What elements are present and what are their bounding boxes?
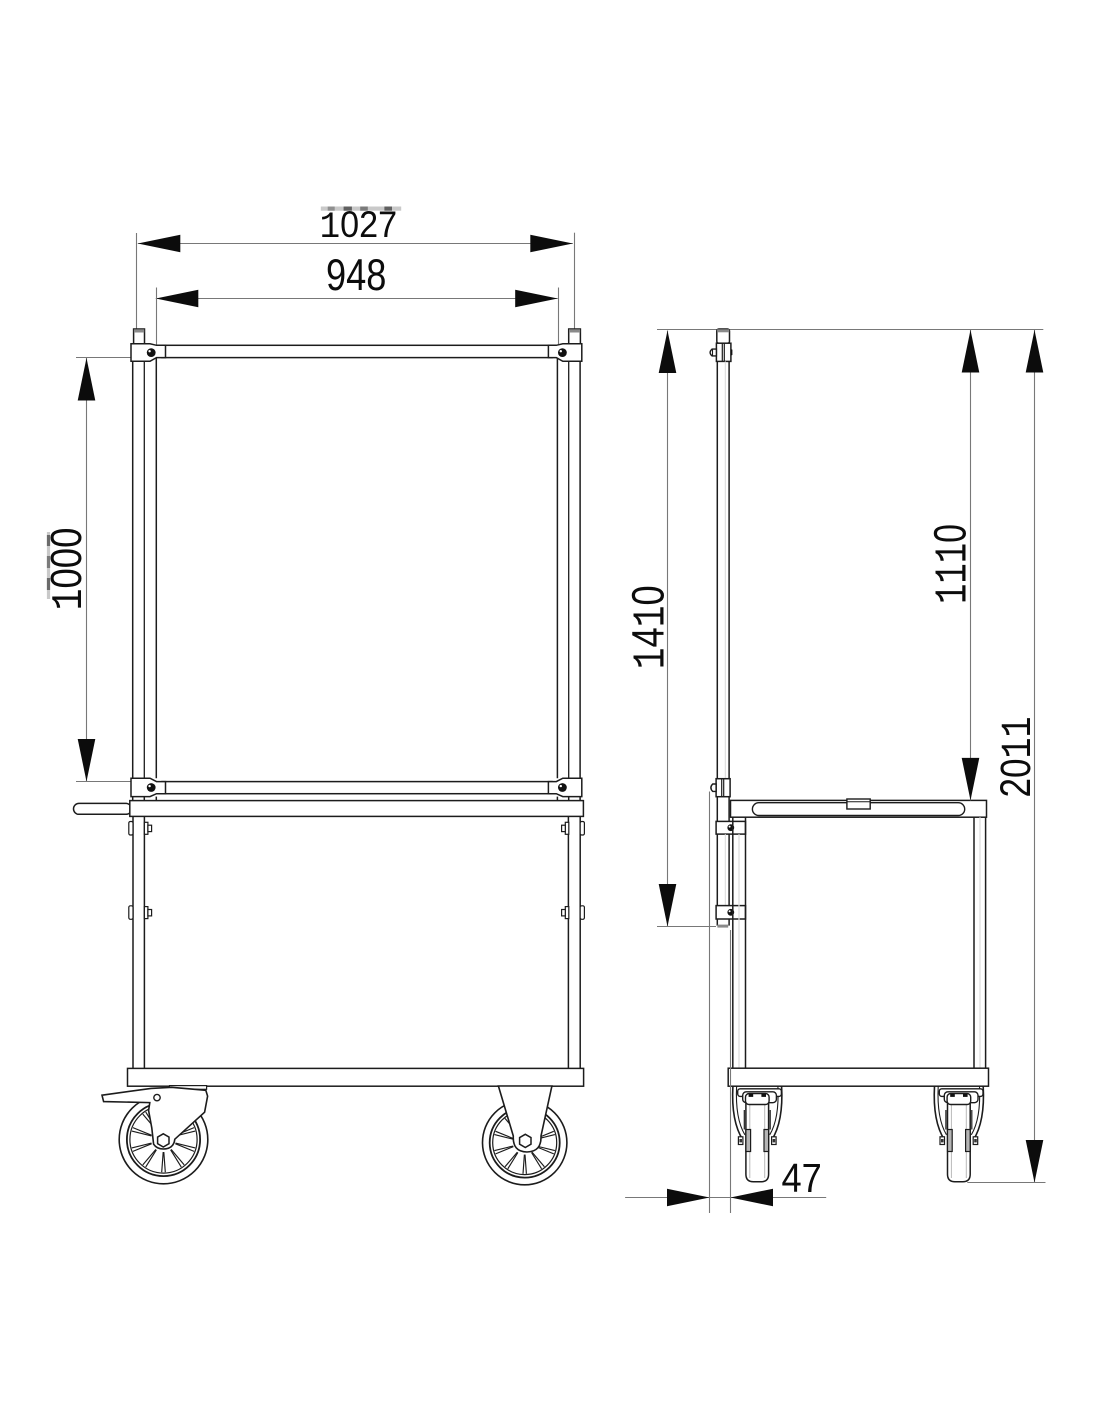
svg-text:948: 948: [326, 251, 386, 300]
svg-text:47: 47: [781, 1155, 821, 1201]
svg-text:2011: 2011: [993, 717, 1043, 798]
svg-text:1000: 1000: [43, 528, 95, 611]
svg-text:1110: 1110: [925, 524, 980, 604]
svg-text:1410: 1410: [623, 585, 678, 669]
svg-text:1027: 1027: [320, 203, 398, 249]
